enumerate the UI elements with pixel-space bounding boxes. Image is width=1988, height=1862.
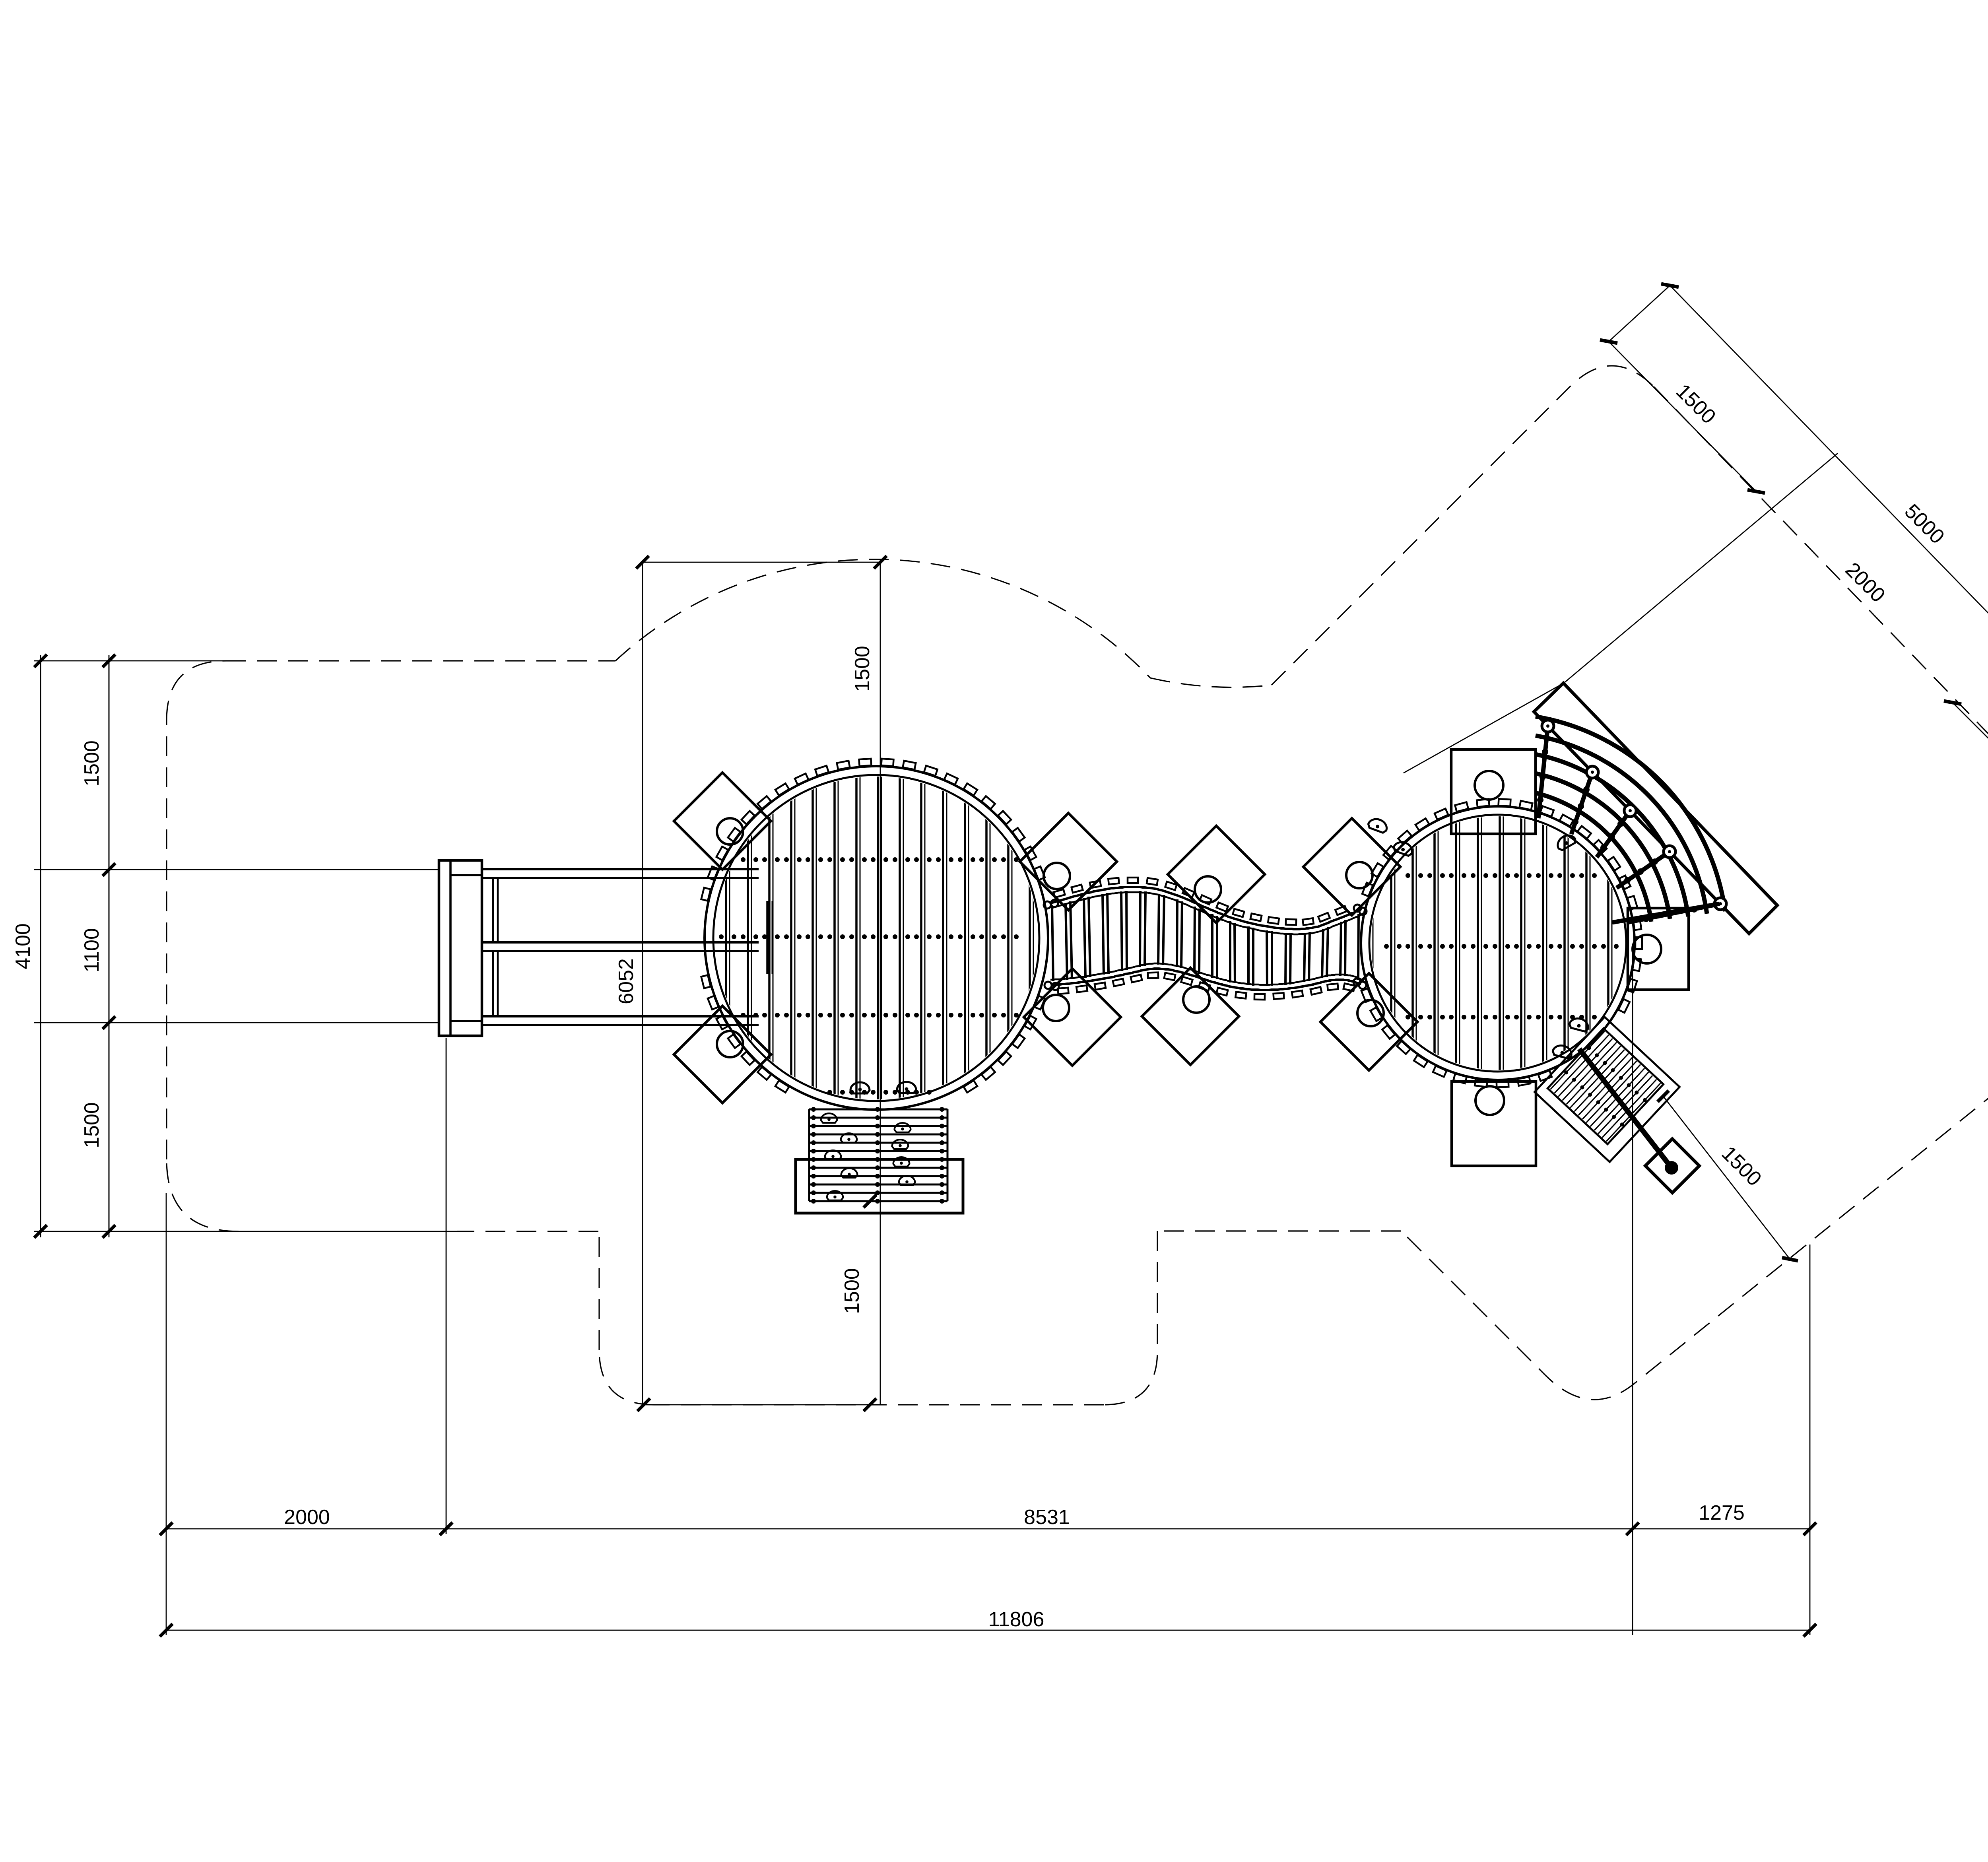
svg-text:1500: 1500 bbox=[80, 740, 103, 786]
svg-text:11806: 11806 bbox=[988, 1608, 1044, 1631]
svg-text:1500: 1500 bbox=[851, 646, 874, 692]
svg-text:8531: 8531 bbox=[1024, 1506, 1070, 1529]
svg-text:1275: 1275 bbox=[1699, 1501, 1745, 1524]
svg-text:1500: 1500 bbox=[841, 1268, 864, 1314]
svg-text:1100: 1100 bbox=[80, 928, 103, 973]
svg-text:6052: 6052 bbox=[615, 958, 638, 1004]
svg-text:2000: 2000 bbox=[284, 1506, 330, 1529]
svg-text:1500: 1500 bbox=[80, 1102, 103, 1148]
svg-text:4100: 4100 bbox=[12, 923, 35, 969]
